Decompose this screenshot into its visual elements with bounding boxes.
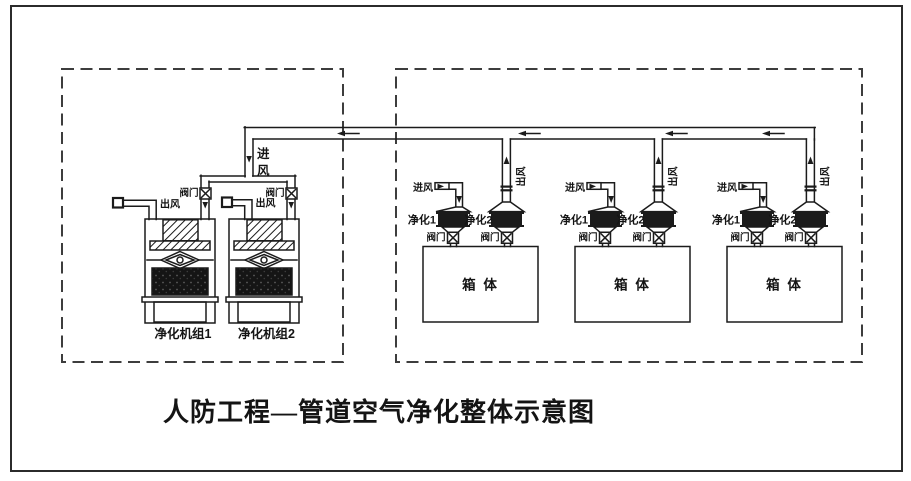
up-arrow-icon bbox=[656, 157, 662, 165]
unit1-outlet-pipe: 出风 bbox=[113, 198, 180, 220]
group3-valve-left: 阀门 bbox=[730, 232, 762, 244]
purifier-unit-2: 出风 阀门 净化机组2 bbox=[222, 187, 302, 341]
down-arrow-icon bbox=[608, 196, 614, 203]
diagram-title: 人防工程—管道空气净化整体示意图 bbox=[163, 397, 595, 427]
down-arrow-icon bbox=[246, 156, 252, 163]
funnel bbox=[495, 227, 519, 232]
unit2-valve-label: 阀门 bbox=[265, 187, 284, 199]
valve-label: 阀门 bbox=[632, 232, 651, 244]
pipe-joint-icon bbox=[653, 186, 665, 188]
valve-label: 阀门 bbox=[784, 232, 803, 244]
up-arrow-icon bbox=[808, 157, 814, 165]
purifier-left-label: 净化1 bbox=[712, 213, 740, 227]
box-group-2: 进风 阀门 出风 阀门 净 bbox=[560, 139, 690, 322]
group2-outlet-label: 出风 bbox=[667, 167, 680, 187]
main-header-pipe bbox=[244, 128, 815, 141]
box-group-3: 进风 阀门 出风 阀门 净 bbox=[712, 139, 842, 322]
pipe-joint-icon bbox=[805, 186, 817, 188]
tank-box-label: 箱 体 bbox=[462, 277, 499, 293]
pipe-joint-icon bbox=[653, 189, 665, 191]
intake-label-vertical: 进 风 bbox=[257, 146, 273, 178]
unit1-outlet-label: 出风 bbox=[160, 198, 180, 211]
left-zone-feed-pipe: 进 风 bbox=[200, 127, 296, 188]
funnel bbox=[647, 227, 671, 232]
down-arrow-icon bbox=[760, 196, 766, 203]
purifier-right-body bbox=[643, 214, 674, 225]
pipe-joint-icon bbox=[501, 189, 513, 191]
funnel bbox=[799, 227, 823, 232]
unit1-valve: 阀门 bbox=[179, 187, 211, 199]
purifier-right-label: 净化2 bbox=[616, 213, 644, 227]
purifier-right-label: 净化2 bbox=[464, 213, 492, 227]
group1-valve-right: 阀门 bbox=[480, 232, 512, 244]
unit1-valve-label: 阀门 bbox=[179, 187, 198, 199]
valve-label: 阀门 bbox=[730, 232, 749, 244]
down-arrow-icon bbox=[288, 202, 294, 209]
flow-arrow-icon bbox=[762, 131, 784, 136]
funnel bbox=[442, 227, 464, 232]
funnel bbox=[793, 202, 828, 212]
purifier-unit-1-internals bbox=[142, 219, 218, 323]
funnel bbox=[746, 227, 768, 232]
pipe-joint-icon bbox=[501, 186, 513, 188]
group3-outlet-label: 出风 bbox=[819, 167, 832, 187]
funnel bbox=[641, 202, 676, 212]
purifier-right-body bbox=[795, 214, 826, 225]
purifier-left-label: 净化1 bbox=[560, 213, 588, 227]
tank-box-label: 箱 体 bbox=[614, 277, 651, 293]
left-zone-dashed-border bbox=[62, 69, 343, 362]
outlet-cap-icon bbox=[222, 198, 232, 208]
group2-inlet-label: 进风 bbox=[565, 181, 585, 194]
schematic-page: 进 风 出风 阀门 净化机组1 bbox=[0, 0, 911, 481]
flow-arrow-icon bbox=[518, 131, 540, 136]
purifier-right-label: 净化2 bbox=[768, 213, 796, 227]
group3-inlet-label: 进风 bbox=[717, 181, 737, 194]
flow-arrow-icon bbox=[665, 131, 687, 136]
valve-label: 阀门 bbox=[578, 232, 597, 244]
funnel bbox=[594, 227, 616, 232]
valve-label: 阀门 bbox=[426, 232, 445, 244]
group2-valve-right: 阀门 bbox=[632, 232, 664, 244]
group1-valve-left: 阀门 bbox=[426, 232, 458, 244]
down-arrow-icon bbox=[456, 196, 462, 203]
purifier-right-body bbox=[491, 214, 522, 225]
funnel bbox=[436, 207, 470, 212]
unit2-outlet-pipe: 出风 bbox=[222, 197, 276, 220]
group2-valve-left: 阀门 bbox=[578, 232, 610, 244]
box-group-1: 进风 阀门 出风 阀门 bbox=[408, 139, 538, 322]
unit2-valve: 阀门 bbox=[265, 187, 297, 199]
valve-label: 阀门 bbox=[480, 232, 499, 244]
unit2-name-label: 净化机组2 bbox=[238, 326, 295, 341]
outlet-cap-icon bbox=[113, 198, 123, 208]
group3-valve-right: 阀门 bbox=[784, 232, 816, 244]
pipe-joint-icon bbox=[805, 189, 817, 191]
group1-outlet-label: 出风 bbox=[515, 167, 528, 187]
unit1-name-label: 净化机组1 bbox=[155, 326, 212, 341]
purifier-unit-1: 出风 阀门 净化机组1 bbox=[113, 187, 218, 341]
diagram-canvas: 进 风 出风 阀门 净化机组1 bbox=[0, 0, 911, 481]
flow-arrow-icon bbox=[337, 131, 359, 136]
group1-inlet-label: 进风 bbox=[413, 181, 433, 194]
purifier-left-label: 净化1 bbox=[408, 213, 436, 227]
funnel bbox=[740, 207, 774, 212]
up-arrow-icon bbox=[504, 157, 510, 165]
purifier-unit-2-internals bbox=[226, 219, 302, 323]
down-arrow-icon bbox=[202, 202, 208, 209]
funnel bbox=[588, 207, 622, 212]
funnel bbox=[489, 202, 524, 212]
tank-box-label: 箱 体 bbox=[766, 277, 803, 293]
